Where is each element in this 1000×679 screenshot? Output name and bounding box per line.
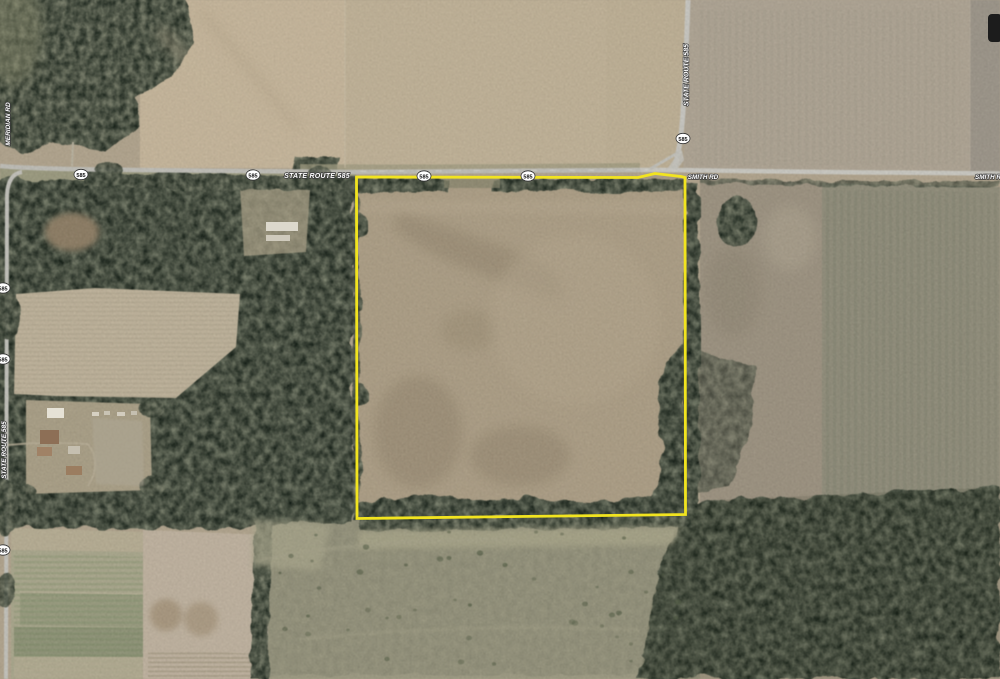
svg-text:STATE ROUTE 585: STATE ROUTE 585 <box>284 173 350 180</box>
svg-text:STATE ROUTE 585: STATE ROUTE 585 <box>684 44 691 106</box>
svg-text:STATE ROUTE 585: STATE ROUTE 585 <box>1 421 8 479</box>
svg-text:585: 585 <box>419 174 428 180</box>
svg-text:MERIDIAN RD: MERIDIAN RD <box>5 102 12 146</box>
svg-text:585: 585 <box>248 173 257 179</box>
svg-text:585: 585 <box>0 286 8 292</box>
svg-text:585: 585 <box>523 174 532 180</box>
svg-text:SMITH RD: SMITH RD <box>688 174 719 181</box>
svg-text:585: 585 <box>678 137 687 143</box>
svg-text:585: 585 <box>76 173 85 179</box>
svg-text:585: 585 <box>0 548 8 554</box>
svg-text:SMITH R: SMITH R <box>975 174 1000 181</box>
svg-text:585: 585 <box>0 357 8 363</box>
